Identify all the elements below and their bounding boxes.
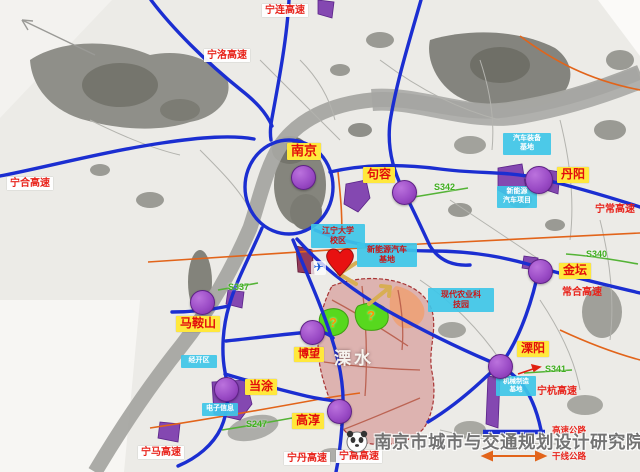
hwy-name: 宁连高速 (265, 5, 305, 16)
city-name: 溧阳 (521, 341, 545, 355)
info-line: 电子信息 (203, 405, 237, 414)
city-name: 丹阳 (561, 167, 585, 181)
node-circle-bowang (300, 320, 325, 345)
route-number: S247 (246, 419, 267, 429)
watermark-text: 南京市城市与交通规划设计研究院 (374, 429, 640, 454)
hwy-label-ningluo: 宁洛高速 (204, 49, 250, 62)
hwy-label-ninglian: 宁连高速 (262, 4, 308, 17)
route-label-s247: S247 (246, 419, 267, 429)
district-label-lishui: 溧水 (334, 344, 374, 369)
info-line: 汽车项目 (498, 197, 536, 206)
info-line: 机械制造 (497, 378, 535, 386)
hwy-label-ningdan: 宁丹高速 (284, 452, 330, 465)
city-label-dangtu: 当涂 (245, 379, 277, 395)
city-label-maanshan: 马鞍山 (176, 316, 220, 332)
airplane-glyph: ✈ (313, 260, 323, 274)
panda-logo-icon (344, 428, 370, 454)
city-label-jurong: 句容 (363, 167, 395, 183)
airport-icon: ✈ (311, 261, 326, 275)
info-line: 技园 (429, 300, 493, 310)
city-label-jintan: 金坛 (559, 263, 591, 279)
hwy-name: 宁常高速 (595, 204, 635, 215)
info-box-dangtu-electronics: 电子信息 (202, 403, 238, 416)
city-name: 博望 (298, 348, 320, 360)
node-circle-dangtu (214, 377, 239, 402)
info-line: 基地 (504, 144, 550, 153)
question-glyph: ? (367, 308, 375, 323)
info-line: 新能源汽车 (358, 245, 416, 255)
city-name: 当涂 (249, 379, 273, 393)
city-label-nanjing: 南京 (287, 143, 321, 160)
route-label-s340: S340 (586, 249, 607, 259)
city-name: 南京 (291, 143, 317, 158)
info-line: 经开区 (182, 357, 216, 366)
hwy-label-changhe: 常合高速 (562, 287, 602, 298)
question-glyph: ? (329, 315, 337, 330)
node-circle-jintan (528, 259, 553, 284)
info-box-danyang-auto: 汽车装备 基地 (503, 133, 551, 155)
info-box-agri-park: 现代农业科 技园 (428, 288, 494, 312)
district-name: 溧水 (334, 349, 374, 368)
city-name: 马鞍山 (180, 316, 216, 330)
hwy-label-ninghe: 宁合高速 (7, 177, 53, 190)
city-label-bowang: 博望 (294, 347, 324, 362)
city-name: 句容 (367, 167, 391, 181)
hwy-label-ningchang: 宁常高速 (595, 204, 635, 215)
hwy-label-ningma: 宁马高速 (138, 446, 184, 459)
hwy-name: 宁丹高速 (287, 453, 327, 464)
info-line: 基地 (497, 386, 535, 394)
city-name: 高淳 (296, 413, 320, 427)
hwy-name: 常合高速 (562, 287, 602, 298)
node-circle-liyang (488, 354, 513, 379)
route-label-s342: S342 (434, 182, 455, 192)
route-number: S340 (586, 249, 607, 259)
route-number: S341 (545, 364, 566, 374)
node-circle-gaochun (327, 399, 352, 424)
city-name: 金坛 (563, 263, 587, 277)
node-circle-maanshan (190, 290, 215, 315)
info-box-nev-base: 新能源汽车 基地 (357, 243, 417, 267)
route-number: S337 (228, 282, 249, 292)
route-label-s341: S341 (545, 364, 566, 374)
info-box-liyang-machinery: 机械制造 基地 (496, 376, 536, 396)
hwy-label-ninghang: 宁杭高速 (537, 386, 577, 397)
city-label-danyang: 丹阳 (557, 167, 589, 183)
hwy-name: 宁马高速 (141, 447, 181, 458)
city-label-liyang: 溧阳 (517, 341, 549, 357)
node-circle-danyang (525, 166, 553, 194)
hwy-name: 宁洛高速 (207, 50, 247, 61)
info-line: 现代农业科 (429, 290, 493, 300)
hwy-name: 宁杭高速 (537, 386, 577, 397)
node-circle-nanjing (291, 165, 316, 190)
info-box-maanshan-zone: 经开区 (181, 355, 217, 368)
watermark: 南京市城市与交通规划设计研究院 (344, 428, 640, 454)
city-label-gaochun: 高淳 (292, 413, 324, 429)
question-mark-site-west: ? (329, 315, 337, 330)
info-line: 基地 (358, 255, 416, 265)
question-mark-site-east: ? (367, 308, 375, 323)
info-line: 江宁大学 (312, 226, 364, 236)
route-number: S342 (434, 182, 455, 192)
planning-map: 汽车装备 基地 新能源 汽车项目 江宁大学 校区 新能源汽车 基地 现代农业科 … (0, 0, 640, 472)
route-label-s337: S337 (228, 282, 249, 292)
info-line: 汽车装备 (504, 135, 550, 144)
hwy-name: 宁合高速 (10, 178, 50, 189)
node-circle-jurong (392, 180, 417, 205)
